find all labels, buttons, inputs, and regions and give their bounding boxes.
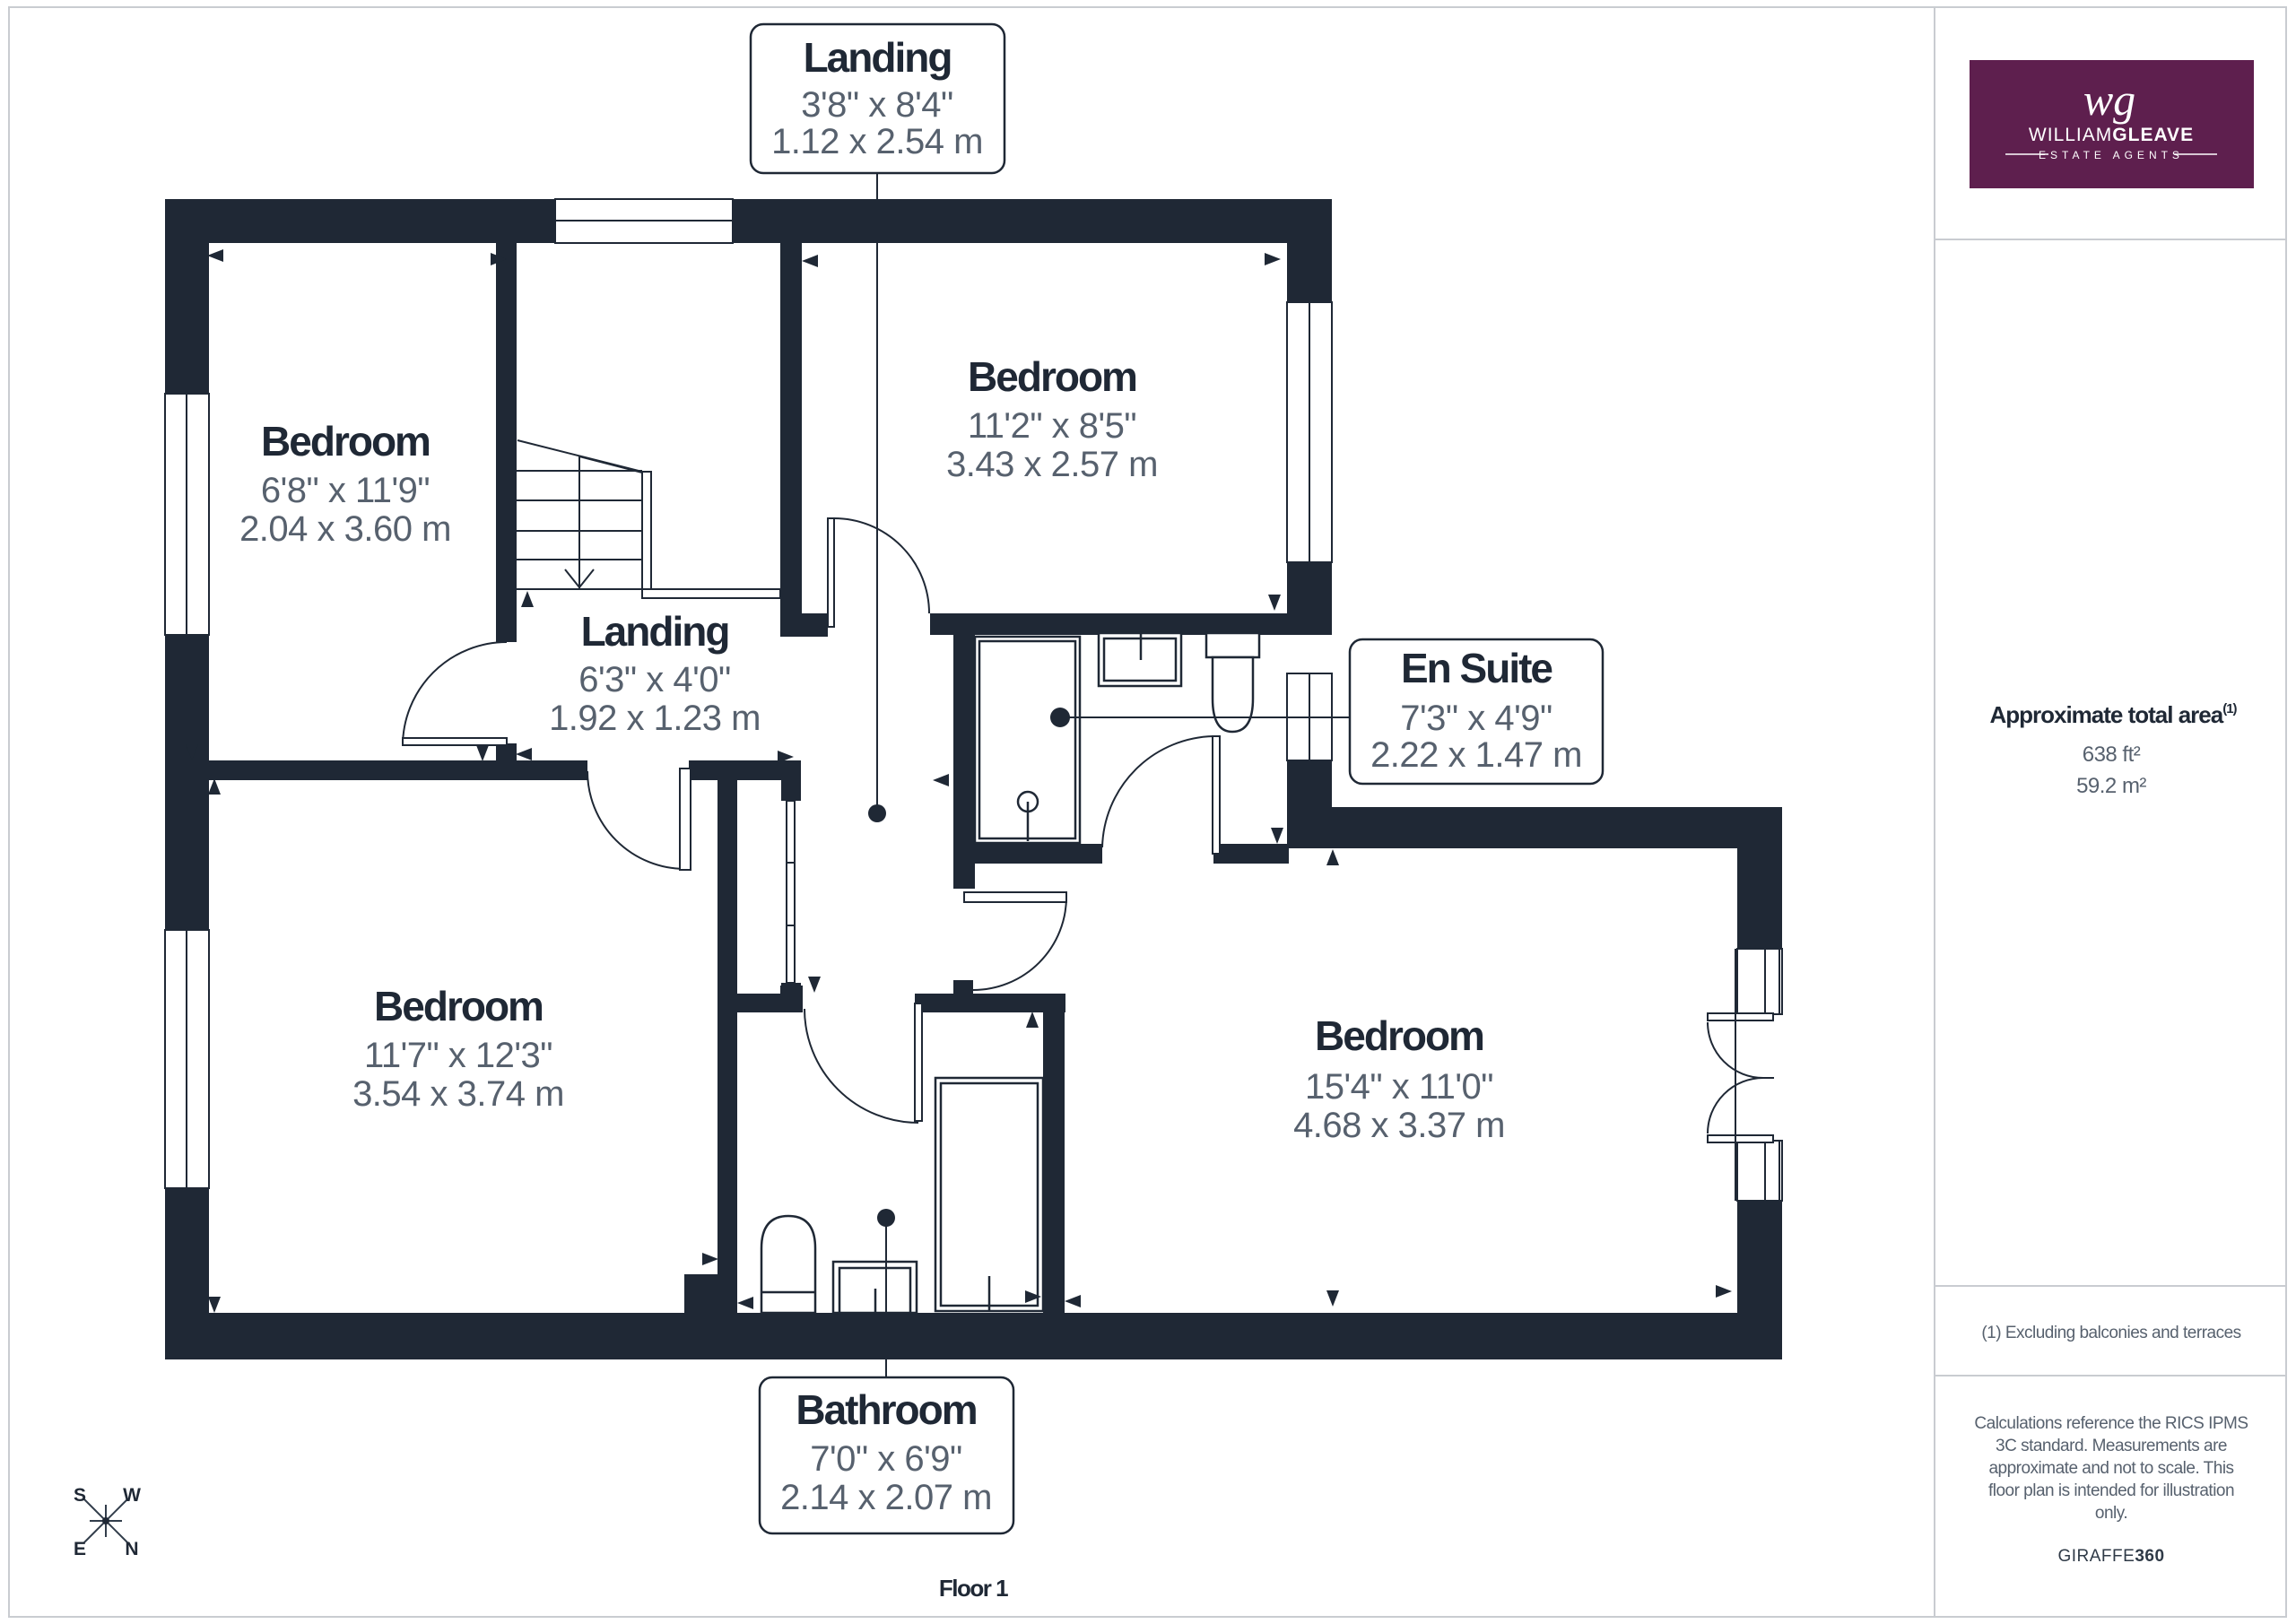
svg-text:Approximate total area(1): Approximate total area(1) — [1989, 701, 2237, 728]
svg-text:6'8" x 11'9": 6'8" x 11'9" — [261, 471, 430, 510]
svg-text:Landing: Landing — [581, 608, 729, 655]
svg-text:11'2" x 8'5": 11'2" x 8'5" — [968, 406, 1136, 446]
svg-text:Bedroom: Bedroom — [968, 353, 1136, 400]
svg-text:7'3" x 4'9": 7'3" x 4'9" — [1400, 699, 1552, 738]
svg-text:6'3" x 4'0": 6'3" x 4'0" — [578, 660, 730, 699]
svg-text:2.14 x 2.07 m: 2.14 x 2.07 m — [780, 1478, 992, 1517]
svg-text:GIRAFFE360: GIRAFFE360 — [2057, 1547, 2164, 1566]
svg-text:approximate and not to scale.: approximate and not to scale. This — [1988, 1459, 2233, 1478]
svg-text:E: E — [74, 1539, 86, 1559]
svg-text:3.54 x 3.74 m: 3.54 x 3.74 m — [352, 1074, 564, 1114]
svg-text:ESTATE AGENTS: ESTATE AGENTS — [2039, 149, 2184, 161]
svg-text:4.68 x 3.37 m: 4.68 x 3.37 m — [1293, 1106, 1505, 1145]
svg-text:15'4" x 11'0": 15'4" x 11'0" — [1305, 1067, 1493, 1107]
svg-text:Bedroom: Bedroom — [261, 418, 430, 465]
svg-text:Calculations reference the RIC: Calculations reference the RICS IPMS — [1974, 1414, 2248, 1433]
svg-text:3'8" x 8'4": 3'8" x 8'4" — [801, 85, 952, 125]
svg-text:only.: only. — [2095, 1504, 2127, 1523]
svg-text:WILLIAMGLEAVE: WILLIAMGLEAVE — [2029, 125, 2194, 145]
svg-text:59.2 m²: 59.2 m² — [2076, 774, 2146, 798]
svg-text:S: S — [74, 1485, 86, 1506]
svg-text:1.92 x 1.23 m: 1.92 x 1.23 m — [549, 699, 761, 738]
svg-text:N: N — [125, 1539, 138, 1559]
svg-text:Landing: Landing — [804, 34, 952, 81]
svg-text:638 ft²: 638 ft² — [2083, 743, 2141, 767]
svg-text:floor plan is intended for ill: floor plan is intended for illustration — [1988, 1481, 2234, 1500]
svg-text:3C standard. Measurements are: 3C standard. Measurements are — [1996, 1437, 2227, 1455]
svg-text:1.12 x 2.54 m: 1.12 x 2.54 m — [771, 122, 983, 161]
svg-text:Floor 1: Floor 1 — [939, 1575, 1008, 1602]
svg-text:wg: wg — [2083, 74, 2135, 125]
svg-text:En Suite: En Suite — [1401, 645, 1552, 691]
svg-text:(1) Excluding balconies and te: (1) Excluding balconies and terraces — [1981, 1324, 2240, 1342]
svg-text:Bedroom: Bedroom — [374, 983, 543, 1029]
svg-text:W: W — [123, 1485, 141, 1506]
svg-text:11'7" x 12'3": 11'7" x 12'3" — [364, 1036, 552, 1075]
svg-text:2.22 x 1.47 m: 2.22 x 1.47 m — [1370, 735, 1582, 775]
svg-text:2.04 x 3.60 m: 2.04 x 3.60 m — [239, 509, 451, 549]
svg-text:7'0" x 6'9": 7'0" x 6'9" — [810, 1439, 961, 1479]
svg-text:Bedroom: Bedroom — [1315, 1012, 1483, 1059]
svg-text:Bathroom: Bathroom — [796, 1386, 976, 1433]
svg-text:3.43 x 2.57 m: 3.43 x 2.57 m — [946, 445, 1158, 484]
